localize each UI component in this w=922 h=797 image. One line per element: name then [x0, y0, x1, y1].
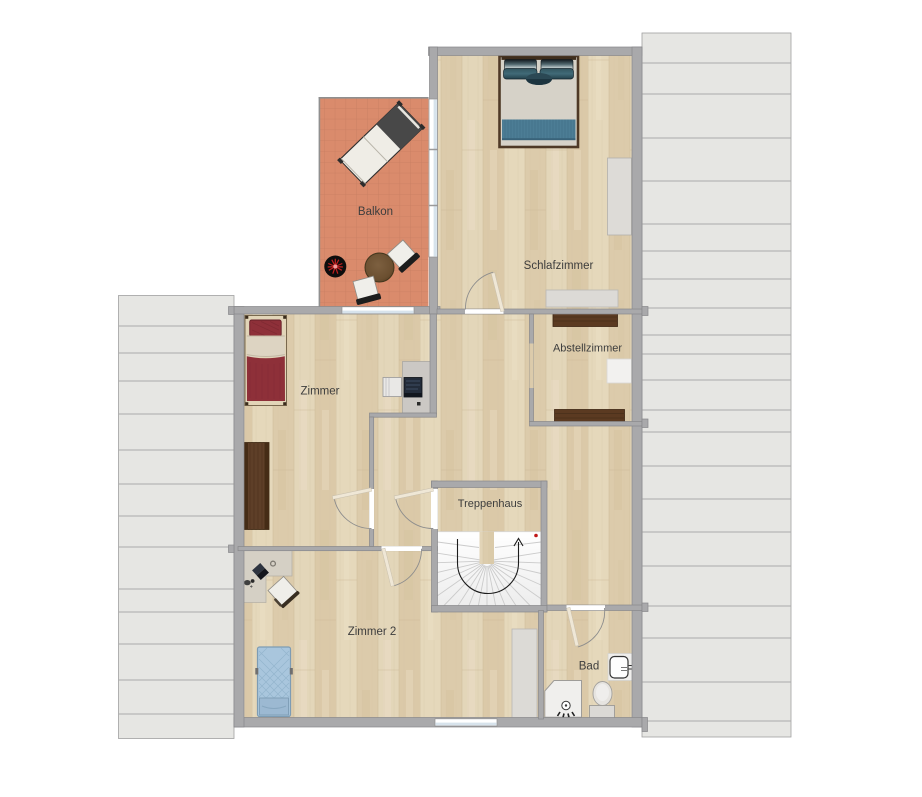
svg-text:Schlafzimmer: Schlafzimmer: [524, 260, 594, 272]
svg-text:Treppenhaus: Treppenhaus: [458, 498, 523, 510]
svg-text:Zimmer 2: Zimmer 2: [348, 626, 397, 638]
svg-text:Balkon: Balkon: [358, 206, 393, 218]
svg-text:Zimmer: Zimmer: [301, 386, 340, 398]
svg-text:Bad: Bad: [579, 661, 599, 673]
svg-text:Abstellzimmer: Abstellzimmer: [553, 343, 622, 355]
